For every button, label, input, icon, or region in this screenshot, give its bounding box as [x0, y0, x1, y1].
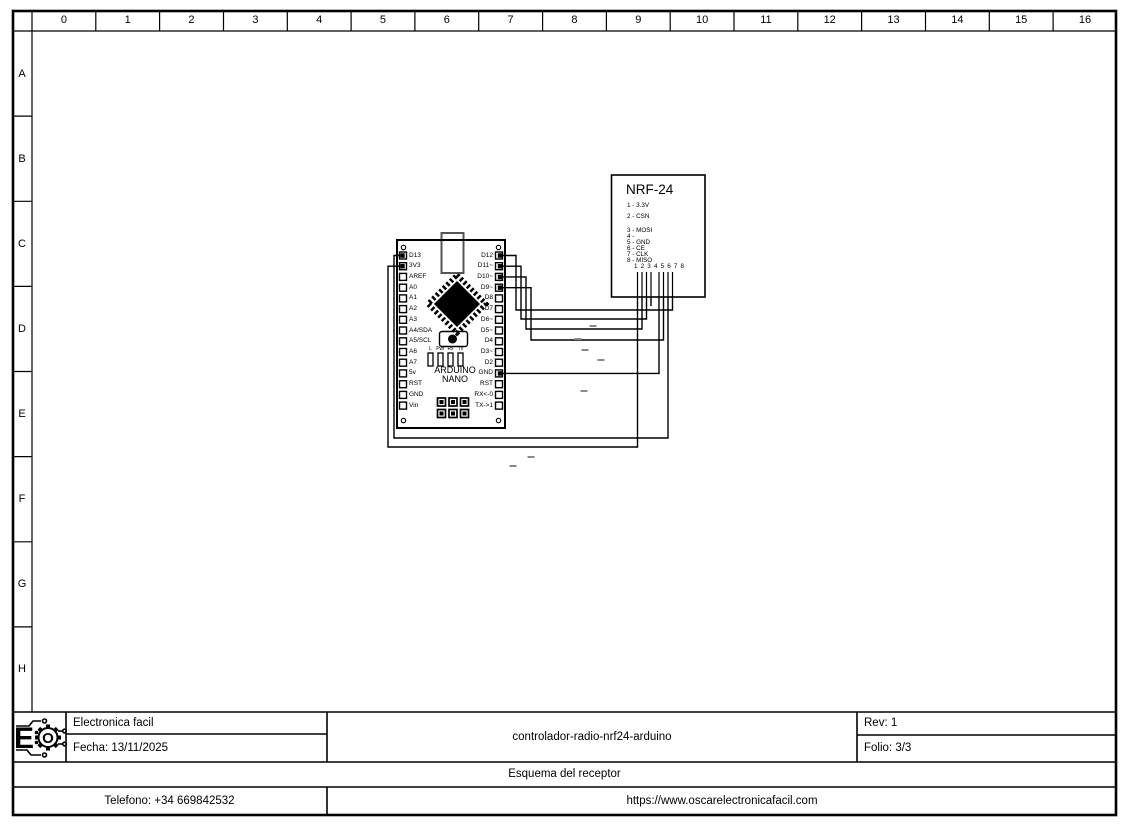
- arduino-pin-label: D4: [450, 336, 493, 346]
- row-label: A: [12, 31, 32, 116]
- schematic-sheet: O E 0 1 2 3 4 5 6 7 8 9 10 11 12 13 14 1…: [0, 0, 1137, 830]
- arduino-pin-label: AREF: [409, 272, 426, 282]
- arduino-pin-label: D7: [450, 304, 493, 314]
- schematic-canvas: O E: [0, 0, 1137, 830]
- led-label: Tx: [453, 346, 469, 352]
- column-label: 12: [798, 10, 862, 31]
- nrf24-pin-line: 2 - CSN: [627, 213, 649, 220]
- column-label: 6: [415, 10, 479, 31]
- arduino-pin-label: A2: [409, 304, 417, 314]
- phone-field: Telefono: +34 669842532: [12, 787, 327, 816]
- column-label: 2: [160, 10, 224, 31]
- project-title: controlador-radio-nrf24-arduino: [327, 712, 857, 762]
- column-label: 10: [670, 10, 734, 31]
- company-name: Electronica facil: [73, 712, 154, 734]
- arduino-pin-label: A4/SDA: [409, 326, 432, 336]
- row-label: E: [12, 372, 32, 457]
- arduino-pin-label: D13: [409, 251, 421, 261]
- column-label: 11: [734, 10, 798, 31]
- column-label: 16: [1053, 10, 1117, 31]
- arduino-name-line2: NANO: [420, 375, 490, 384]
- website-field: https://www.oscarelectronicafacil.com: [327, 787, 1117, 816]
- row-label: D: [12, 286, 32, 371]
- nrf24-pin-line: 1 - 3.3V: [627, 202, 649, 209]
- svg-text:E: E: [14, 722, 34, 755]
- arduino-pin-label: D5~: [450, 326, 493, 336]
- arduino-pin-label: D9~: [450, 283, 493, 293]
- arduino-pin-label: GND: [409, 390, 423, 400]
- electronica-facil-logo-icon: O E: [14, 719, 66, 757]
- arduino-pin-label: A1: [409, 293, 417, 303]
- arduino-pin-label: A0: [409, 283, 417, 293]
- svg-text:O: O: [42, 730, 54, 747]
- arduino-pin-label: A7: [409, 358, 417, 368]
- arduino-pin-label: A5/SCL: [409, 336, 431, 346]
- arduino-pin-label: A6: [409, 347, 417, 357]
- column-label: 13: [862, 10, 926, 31]
- column-label: 7: [479, 10, 543, 31]
- arduino-pin-label: D11~: [450, 261, 493, 271]
- column-label: 1: [96, 10, 160, 31]
- arduino-pin-label: D6~: [450, 315, 493, 325]
- row-label: B: [12, 116, 32, 201]
- net-label-marks: [510, 325, 605, 467]
- arduino-pin-label: 5v: [409, 368, 416, 378]
- arduino-pin-label: 3V3: [409, 261, 421, 271]
- column-label: 3: [224, 10, 288, 31]
- nrf24-pin-numbers: 1 2 3 4 5 6 7 8: [634, 263, 685, 270]
- column-label: 4: [287, 10, 351, 31]
- drawing-frame: [12, 10, 1117, 816]
- revision-field: Rev: 1: [864, 712, 897, 735]
- sheet-title: Esquema del receptor: [12, 762, 1117, 787]
- column-label: 5: [351, 10, 415, 31]
- arduino-pin-label: Vin: [409, 401, 418, 411]
- nrf24-title: NRF-24: [626, 182, 673, 198]
- column-label: 15: [989, 10, 1053, 31]
- arduino-pin-label: D10~: [450, 272, 493, 282]
- row-label: F: [12, 457, 32, 542]
- column-label: 0: [32, 10, 96, 31]
- date-field: Fecha: 13/11/2025: [73, 734, 168, 762]
- row-label: G: [12, 542, 32, 627]
- row-label: C: [12, 201, 32, 286]
- arduino-pin-label: RX<-0: [450, 390, 493, 400]
- arduino-pin-label: D12: [450, 251, 493, 261]
- row-label: H: [12, 627, 32, 712]
- column-label: 9: [606, 10, 670, 31]
- folio-field: Folio: 3/3: [864, 735, 911, 762]
- column-label: 14: [926, 10, 990, 31]
- arduino-pin-label: D8: [450, 293, 493, 303]
- arduino-pin-label: TX->1: [450, 401, 493, 411]
- arduino-pin-label: A3: [409, 315, 417, 325]
- column-label: 8: [543, 10, 607, 31]
